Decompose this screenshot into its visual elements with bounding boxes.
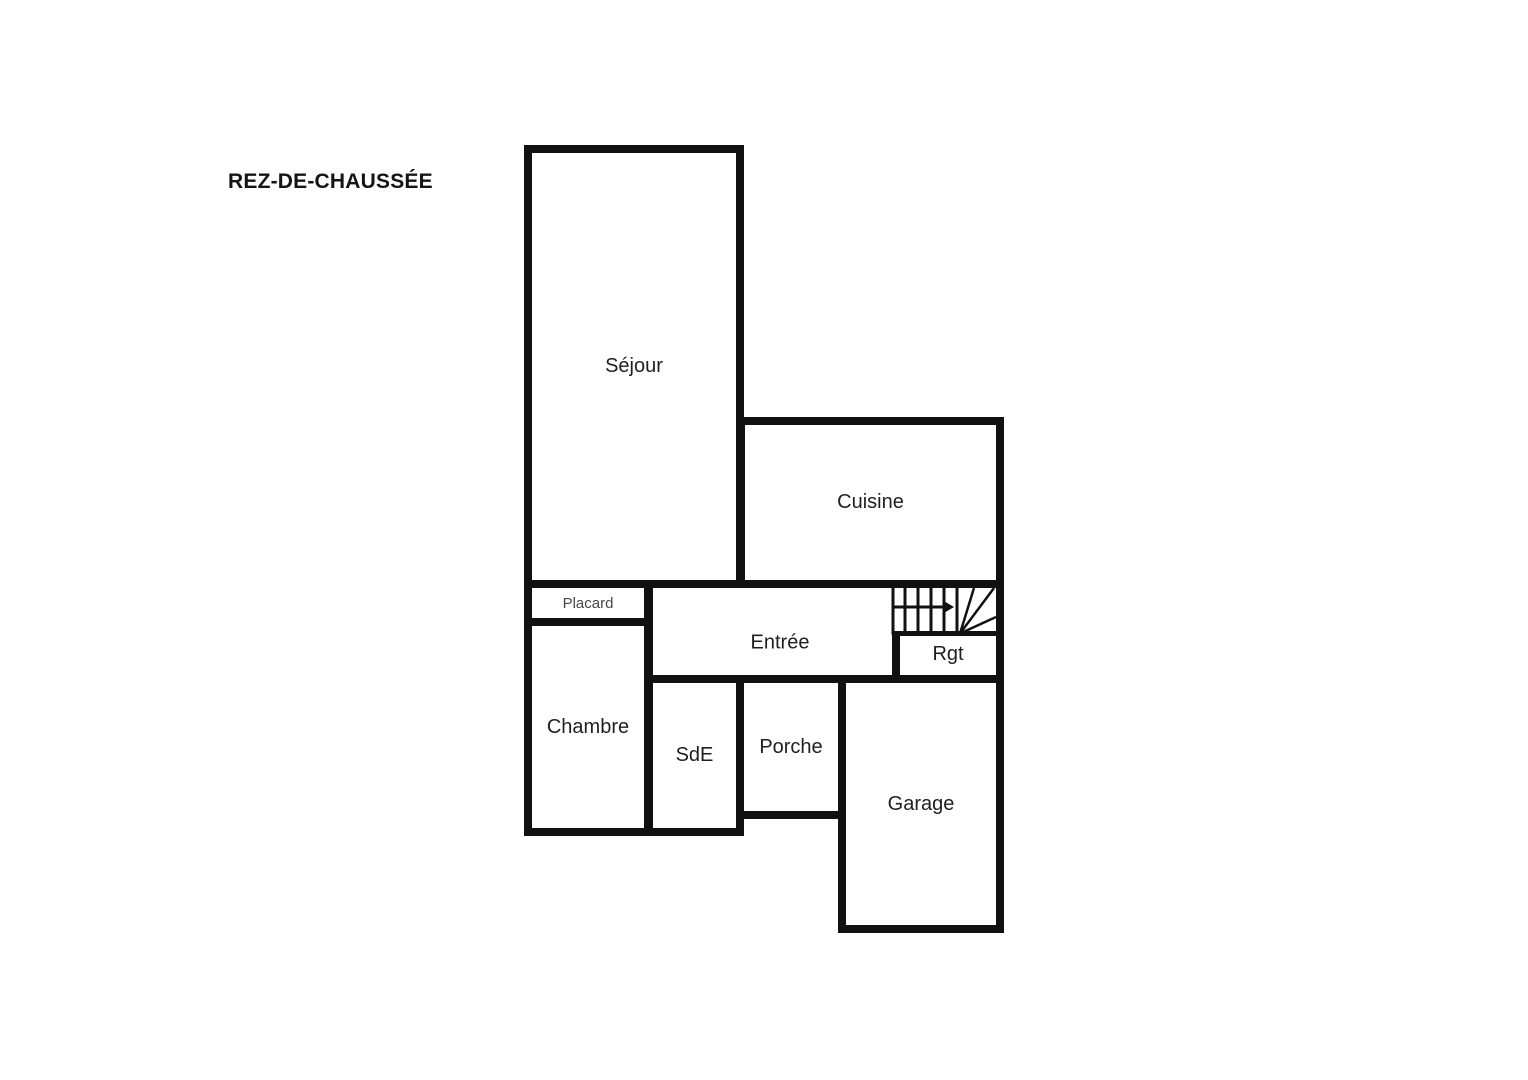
room-cuisine: Cuisine: [737, 417, 1004, 588]
room-label-porche: Porche: [759, 736, 822, 759]
room-label-garage: Garage: [888, 793, 955, 816]
room-label-sejour: Séjour: [605, 355, 663, 378]
room-sde: SdE: [645, 675, 744, 836]
room-label-chambre: Chambre: [547, 716, 629, 739]
room-sejour: Séjour: [524, 145, 744, 588]
stair-treads: [893, 588, 957, 635]
room-label-entree: Entrée: [751, 632, 810, 655]
stair-direction-arrow: [893, 601, 954, 614]
stair-winder-fan: [960, 588, 996, 634]
page-title: REZ-DE-CHAUSSÉE: [228, 170, 433, 194]
room-label-sde: SdE: [676, 744, 714, 767]
room-label-cuisine: Cuisine: [837, 491, 904, 514]
floor-plan: REZ-DE-CHAUSSÉE Séjour Cuisine Placard E…: [0, 0, 1528, 1080]
room-garage: Garage: [838, 675, 1004, 933]
room-label-placard: Placard: [563, 595, 614, 612]
staircase: [885, 588, 1004, 638]
room-porche: Porche: [736, 675, 846, 819]
room-label-rgt: Rgt: [932, 643, 963, 666]
room-chambre: Chambre: [524, 618, 652, 836]
